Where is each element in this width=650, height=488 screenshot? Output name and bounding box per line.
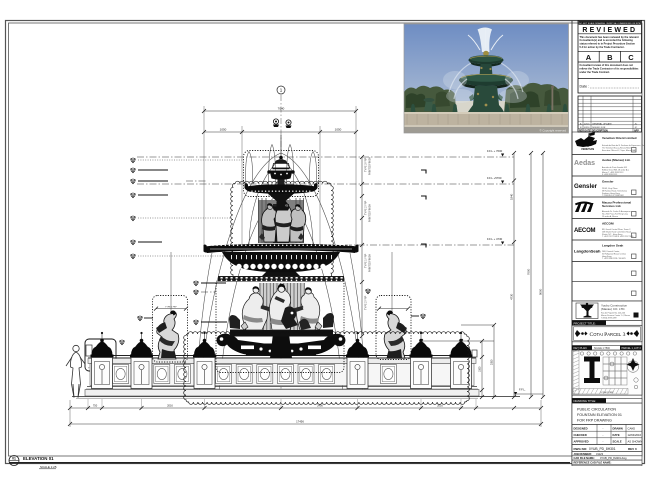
svg-text:APPROVED: APPROVED xyxy=(574,440,589,444)
svg-text:2456: 2456 xyxy=(317,404,323,408)
svg-text:T (853) 2878 2289: T (853) 2878 2289 xyxy=(601,317,617,319)
svg-text:-: - xyxy=(603,441,604,444)
svg-text:© Copyright reserved: © Copyright reserved xyxy=(540,128,567,132)
svg-text:DRAWING TITLE:: DRAWING TITLE: xyxy=(574,399,597,403)
svg-text:03/16: 03/16 xyxy=(584,127,590,129)
svg-text:Services Ltd.: Services Ltd. xyxy=(602,204,621,208)
svg-text:PROJECT TITLE:: PROJECT TITLE: xyxy=(574,321,596,325)
svg-text:AECOM: AECOM xyxy=(574,228,596,234)
svg-text:02/16: 02/16 xyxy=(584,123,590,125)
svg-text:DRAWN: DRAWN xyxy=(613,426,623,430)
svg-text:17456: 17456 xyxy=(296,420,304,424)
svg-text:DATE: DATE xyxy=(613,433,620,437)
svg-text:2016: 2016 xyxy=(167,404,173,408)
svg-text:Langdon Seah: Langdon Seah xyxy=(602,244,623,248)
svg-text:PUBLIC CIRCULATION: PUBLIC CIRCULATION xyxy=(577,408,616,412)
svg-text:PAINTED FINISH: PAINTED FINISH xyxy=(369,204,372,222)
svg-text:Aedas: Aedas xyxy=(574,160,595,167)
svg-text:FOUNTAIN ELEVATION 01: FOUNTAIN ELEVATION 01 xyxy=(577,413,622,417)
svg-text:TYPE 3 FRP: TYPE 3 FRP xyxy=(365,157,368,172)
svg-text:Aedas (Macau) Ltd.: Aedas (Macau) Ltd. xyxy=(602,158,631,162)
svg-text:JC: JC xyxy=(635,127,638,129)
svg-text:01: 01 xyxy=(12,456,16,460)
svg-text:AECOM: AECOM xyxy=(602,222,614,226)
svg-text:VENETIAN: VENETIAN xyxy=(581,147,594,151)
svg-text:F.F.L + 4730: F.F.L + 4730 xyxy=(487,237,503,241)
svg-text:REV 0: REV 0 xyxy=(628,447,637,451)
svg-text:1050: 1050 xyxy=(220,128,227,132)
svg-text:2050: 2050 xyxy=(491,359,494,365)
svg-text:7600: 7600 xyxy=(527,268,531,275)
svg-text:5.4 for action by the Trad: 5.4 for action by the Trade Contractor. xyxy=(580,46,625,49)
svg-text:F.F.L + 7600: F.F.L + 7600 xyxy=(487,149,503,153)
svg-text:-: - xyxy=(603,434,604,437)
svg-text:ISSUED FOR: ISSUED FOR xyxy=(592,127,606,129)
svg-text:9000: 9000 xyxy=(539,288,543,295)
svg-text:750: 750 xyxy=(93,404,98,408)
svg-text:F +853 2833 1115: F +853 2833 1115 xyxy=(602,174,617,176)
svg-text:DO NOT SCALE DRAWING. VERIFY A: DO NOT SCALE DRAWING. VERIFY ALL DIMENSI… xyxy=(579,22,641,25)
svg-text:JOB NUMBER:: JOB NUMBER: xyxy=(574,452,592,456)
svg-text:CAD FILE NAME:: CAD FILE NAME: xyxy=(574,456,595,460)
svg-text:PARCEL 1, LOT 3: PARCEL 1, LOT 3 xyxy=(622,347,642,350)
svg-text:7040: 7040 xyxy=(278,107,285,111)
svg-text:ELEVATION 01: ELEVATION 01 xyxy=(23,456,54,461)
svg-text:DESIGNED: DESIGNED xyxy=(574,426,588,430)
svg-text:1840: 1840 xyxy=(510,193,514,200)
svg-text:Gensler: Gensler xyxy=(602,180,614,184)
svg-text:LangdonSeah: LangdonSeah xyxy=(574,249,601,254)
svg-text:JC: JC xyxy=(635,123,638,125)
svg-text:-: - xyxy=(603,427,604,430)
svg-text:(Macau) CO. LTD.: (Macau) CO. LTD. xyxy=(601,307,625,311)
svg-text:under the Trade Contract.: under the Trade Contract. xyxy=(580,71,611,74)
svg-text:GENERAL UPDATE: GENERAL UPDATE xyxy=(592,122,612,125)
svg-text:COTAI STRIP: COTAI STRIP xyxy=(600,391,614,394)
svg-text:13 andar A, Macau: 13 andar A, Macau xyxy=(602,215,618,218)
svg-text:0YUB_PD_8H301.dwg: 0YUB_PD_8H301.dwg xyxy=(600,456,627,460)
svg-text:F.F.L.: F.F.L. xyxy=(519,388,526,392)
svg-text:KEY PLAN: KEY PLAN xyxy=(574,346,587,350)
svg-text:TYPE 5 FRP: TYPE 5 FRP xyxy=(165,306,177,308)
svg-text:12/04/2016: 12/04/2016 xyxy=(628,433,642,437)
svg-text:Venetian Orient Limited: Venetian Orient Limited xyxy=(602,136,637,140)
svg-text:Gensler: Gensler xyxy=(574,183,598,190)
svg-text:T 2598 8101 F 2598 8102: T 2598 8101 F 2598 8102 xyxy=(602,195,624,197)
svg-text:SCALE 1:7500: SCALE 1:7500 xyxy=(594,347,610,350)
svg-text:TYPE 1 FRP: TYPE 1 FRP xyxy=(365,253,368,268)
svg-text:REVIEWED: REVIEWED xyxy=(582,27,637,34)
svg-text:1500: 1500 xyxy=(479,366,482,372)
svg-text:T +852 2317 7000 F +852 2317: T +852 2317 7000 F +852 2317 7609 xyxy=(602,236,633,238)
svg-text:CHECKED: CHECKED xyxy=(574,433,587,437)
svg-text:1050: 1050 xyxy=(335,128,342,132)
svg-text:TYPE 2 FRP: TYPE 2 FRP xyxy=(365,295,368,310)
svg-text:C: C xyxy=(628,53,634,62)
svg-text:SCALE: SCALE xyxy=(613,440,622,444)
svg-text:PAINTED FINISH: PAINTED FINISH xyxy=(369,254,372,272)
svg-text:REFERENCE CAD FILE NAME:: REFERENCE CAD FILE NAME: xyxy=(574,461,612,465)
svg-text:Date :: Date : xyxy=(580,85,590,89)
svg-text:A: A xyxy=(586,53,592,62)
svg-text:T +852 2830 1128 / 30 0625: T +852 2830 1128 / 30 0625 xyxy=(602,258,626,260)
svg-text:F.F.L +5760: F.F.L +5760 xyxy=(487,176,502,180)
svg-text:FOR FRP DRAWING: FOR FRP DRAWING xyxy=(577,419,612,423)
svg-text:TYPE 2 FRP: TYPE 2 FRP xyxy=(365,200,368,215)
svg-text:AS SHOWN: AS SHOWN xyxy=(628,440,643,444)
svg-text:2016: 2016 xyxy=(437,404,443,408)
svg-text:0YUB_PD_8H301: 0YUB_PD_8H301 xyxy=(589,447,616,451)
svg-text:SCALE 1:25: SCALE 1:25 xyxy=(40,465,57,469)
svg-text:CAHD: CAHD xyxy=(628,426,636,430)
svg-text:4730: 4730 xyxy=(510,293,514,300)
svg-text:PAINTED FINISH: PAINTED FINISH xyxy=(369,157,372,175)
svg-text:DWG NO:: DWG NO: xyxy=(574,447,588,451)
svg-text:31123: 31123 xyxy=(596,452,604,456)
svg-text:B: B xyxy=(607,53,613,62)
